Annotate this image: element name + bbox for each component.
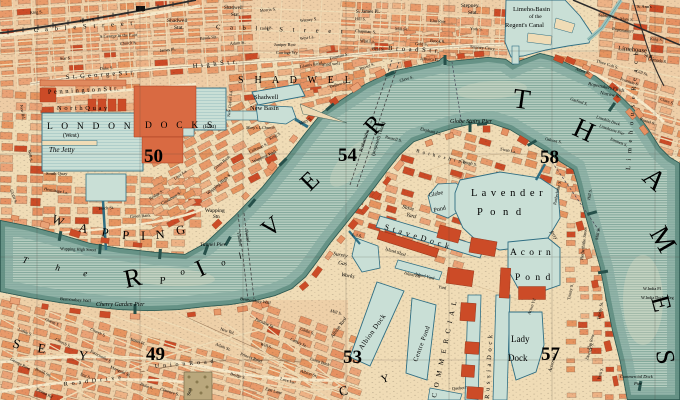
- svg-text:I: I: [141, 229, 145, 243]
- svg-text:Stat.: Stat.: [468, 10, 479, 16]
- svg-text:Lady: Lady: [511, 334, 530, 344]
- svg-text:Shadwell: Shadwell: [224, 6, 243, 11]
- svg-text:P o n d: P o n d: [515, 273, 552, 283]
- svg-text:Globe Stairs Pier: Globe Stairs Pier: [450, 119, 493, 125]
- svg-text:Brook S.: Brook S.: [430, 38, 446, 44]
- svg-text:Pier: Pier: [633, 381, 642, 386]
- svg-text:Wapping: Wapping: [205, 208, 225, 214]
- svg-text:St Ann's: St Ann's: [637, 4, 652, 9]
- svg-text:(West): (West): [63, 132, 79, 139]
- svg-text:Dock: Dock: [508, 353, 528, 363]
- svg-text:54: 54: [338, 145, 358, 166]
- svg-text:P o n d: P o n d: [477, 207, 524, 218]
- svg-text:W.India Docks Reg: W.India Docks Reg: [641, 295, 675, 300]
- svg-text:King S.: King S.: [30, 9, 43, 15]
- svg-text:LimehooBasin: LimehooBasin: [513, 6, 551, 13]
- svg-text:The Jetty: The Jetty: [49, 146, 75, 154]
- svg-text:West La.: West La.: [360, 38, 375, 44]
- svg-text:58: 58: [540, 147, 559, 168]
- svg-text:of the: of the: [529, 13, 542, 20]
- svg-text:49: 49: [146, 344, 165, 365]
- svg-text:Stat.: Stat.: [231, 13, 240, 18]
- svg-text:W.India Pl: W.India Pl: [643, 286, 662, 291]
- svg-text:New Basin: New Basin: [250, 105, 279, 112]
- svg-text:Juniper Row: Juniper Row: [274, 42, 297, 47]
- svg-text:Mary's L.Church: Mary's L.Church: [245, 125, 274, 130]
- svg-text:Tunnel Pier: Tunnel Pier: [200, 242, 227, 248]
- svg-text:Shadwell: Shadwell: [167, 18, 188, 24]
- svg-text:N o r t h Q u a y: N o r t h Q u a y: [57, 105, 108, 112]
- svg-text:York S.: York S.: [470, 26, 483, 32]
- svg-text:South Quay: South Quay: [46, 171, 68, 176]
- svg-text:Hill S.: Hill S.: [355, 16, 366, 22]
- svg-text:(East): (East): [203, 123, 216, 130]
- svg-text:Mill St.: Mill St.: [395, 26, 408, 32]
- svg-text:Commercial Dock: Commercial Dock: [620, 374, 654, 379]
- svg-text:53: 53: [343, 347, 362, 368]
- svg-text:L a v e n d e r: L a v e n d e r: [471, 188, 544, 199]
- svg-text:Elm Row: Elm Row: [430, 18, 446, 24]
- svg-text:Bere S.: Bere S.: [372, 46, 385, 52]
- svg-text:P: P: [122, 228, 130, 242]
- svg-text:Shadwell: Shadwell: [254, 94, 278, 101]
- svg-text:Carriage Wy: Carriage Wy: [276, 50, 299, 55]
- svg-text:Stepney: Stepney: [461, 3, 479, 9]
- svg-text:50: 50: [144, 146, 163, 167]
- svg-text:Queen S.: Queen S.: [80, 17, 96, 23]
- svg-text:Gold S.: Gold S.: [415, 41, 428, 47]
- svg-text:N: N: [155, 227, 165, 242]
- svg-text:Jamaica Pl.: Jamaica Pl.: [420, 56, 440, 62]
- svg-text:St James Pl.: St James Pl.: [356, 10, 380, 15]
- svg-text:A c o r n: A c o r n: [510, 248, 552, 258]
- svg-text:Duke S.: Duke S.: [100, 65, 114, 71]
- svg-text:Star S.: Star S.: [60, 55, 71, 61]
- svg-text:Regent's Canal: Regent's Canal: [505, 22, 544, 29]
- svg-text:Stat.: Stat.: [174, 25, 185, 31]
- svg-text:Stn: Stn: [213, 215, 220, 220]
- svg-text:L O N D O N: L O N D O N: [47, 122, 134, 132]
- svg-text:Cherry Garden Pier: Cherry Garden Pier: [96, 302, 145, 308]
